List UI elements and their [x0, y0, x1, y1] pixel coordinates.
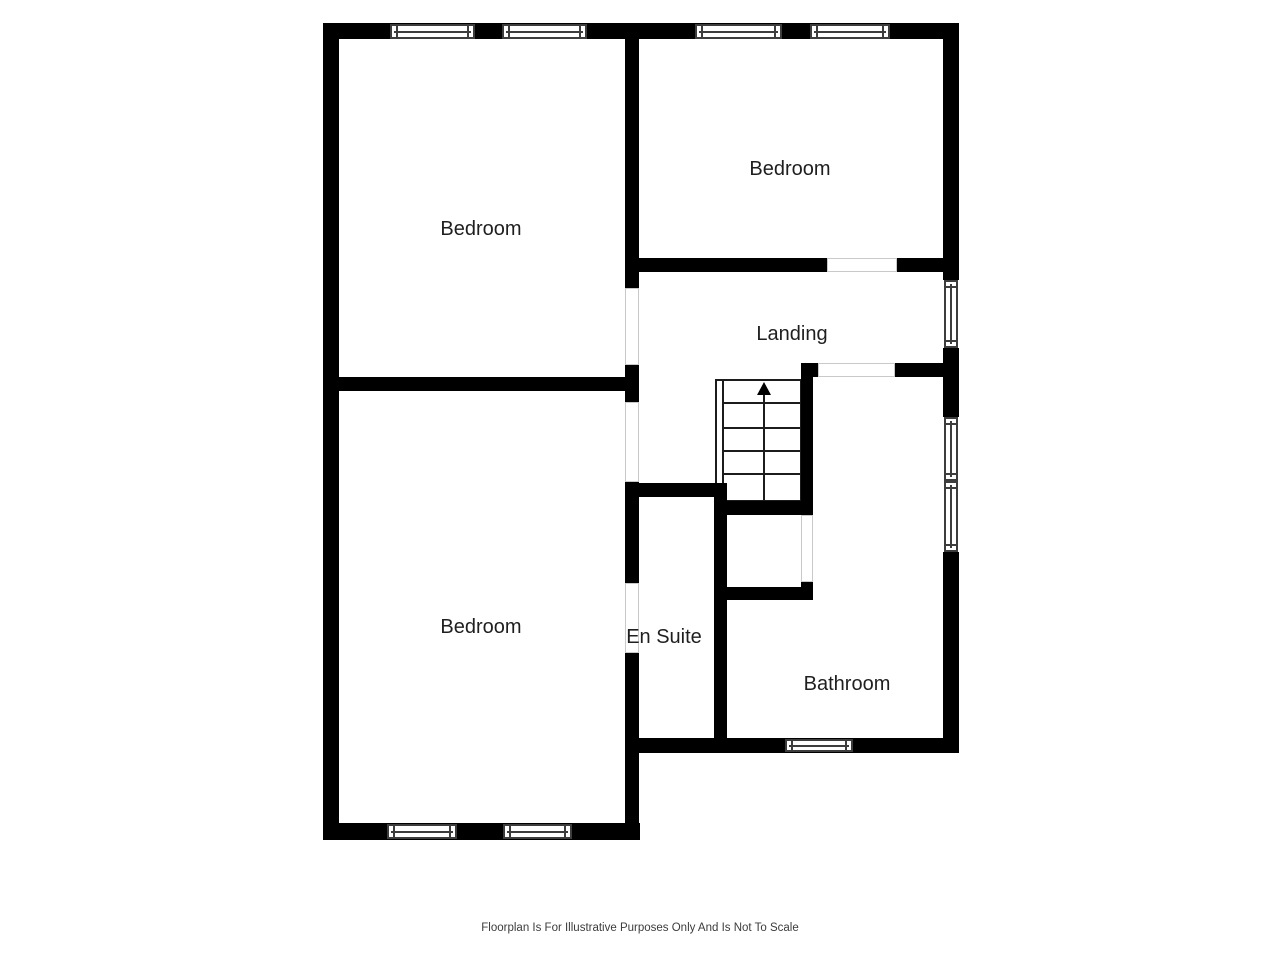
room-label-bedroom-top-left: Bedroom	[371, 217, 591, 241]
window-bottom-2	[503, 824, 572, 839]
window-bottom-1	[387, 824, 457, 839]
door-opening-bathroom	[818, 363, 895, 377]
wall-left	[323, 23, 339, 840]
window-top-4	[810, 24, 890, 39]
wall-center-vertical-d	[625, 653, 639, 823]
window-right-2	[944, 417, 958, 481]
wall-cupboard-bottom	[714, 587, 813, 600]
window-bathroom	[785, 739, 853, 752]
room-label-landing: Landing	[682, 322, 902, 346]
stair-tread-line	[723, 427, 800, 429]
wall-right-middle	[943, 348, 959, 417]
stair-tread-line	[723, 473, 800, 475]
door-opening-bedroom-top-right	[827, 258, 897, 272]
stair-tread-line	[723, 402, 800, 404]
wall-stairs-right-a	[801, 363, 813, 515]
wall-bottom-bedroom	[323, 823, 640, 840]
wall-ensuite-top	[630, 483, 725, 497]
window-right-3	[944, 481, 958, 552]
door-opening-bedroom-bottom	[625, 402, 639, 482]
window-top-2	[502, 24, 587, 39]
window-right-1	[944, 280, 958, 348]
footer-disclaimer: Floorplan Is For Illustrative Purposes O…	[0, 920, 1280, 936]
stair-tread-line	[723, 450, 800, 452]
wall-center-vertical-c	[625, 482, 639, 583]
window-top-1	[390, 24, 475, 39]
wall-right-lower	[943, 552, 959, 753]
window-top-3	[695, 24, 782, 39]
stairs-direction-line	[763, 384, 765, 500]
stairs	[715, 379, 802, 502]
wall-ensuite-right	[714, 483, 727, 752]
wall-stairs-bottom	[714, 501, 813, 515]
room-label-en-suite: En Suite	[554, 625, 774, 649]
room-label-bedroom-top-right: Bedroom	[680, 157, 900, 181]
floorplan-canvas: Bedroom Bedroom Bedroom Landing En Suite…	[0, 0, 1280, 960]
door-opening-cupboard	[801, 515, 813, 582]
wall-left-bedrooms-divider	[337, 377, 639, 391]
wall-center-vertical-a	[625, 39, 639, 288]
wall-right-upper	[943, 23, 959, 280]
wall-bedroom2-bottom-a	[639, 258, 827, 272]
stairs-up-arrow-icon	[757, 382, 771, 395]
wall-bedroom2-bottom-b	[897, 258, 943, 272]
room-label-bathroom: Bathroom	[737, 672, 957, 696]
door-opening-bedroom-top-left	[625, 288, 639, 365]
wall-bathroom-top-b	[895, 363, 943, 377]
